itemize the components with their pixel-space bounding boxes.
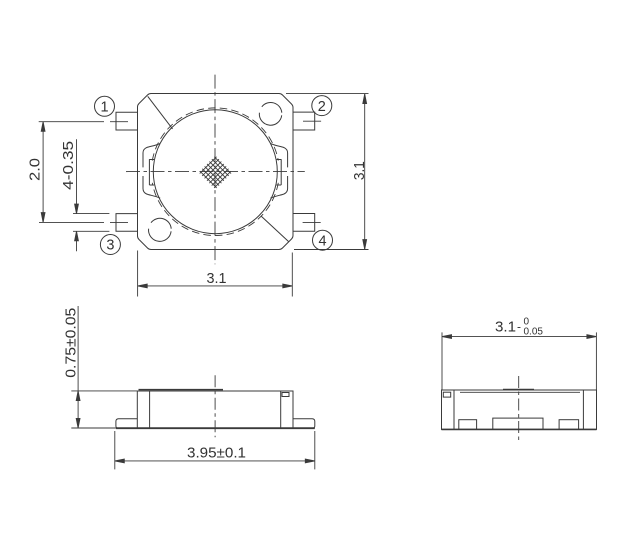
svg-text:2.0: 2.0	[27, 158, 44, 181]
svg-text:3.1: 3.1	[351, 161, 368, 180]
svg-text:3.1: 3.1	[495, 319, 516, 336]
svg-text:3: 3	[106, 238, 114, 254]
svg-text:0.05: 0.05	[524, 327, 544, 338]
svg-text:3.1: 3.1	[207, 270, 227, 287]
svg-text:0.75±0.05: 0.75±0.05	[64, 308, 80, 378]
svg-text:-: -	[517, 320, 521, 334]
svg-text:2: 2	[318, 99, 326, 115]
svg-text:4-0.35: 4-0.35	[60, 141, 77, 190]
svg-text:3.95±0.1: 3.95±0.1	[187, 444, 246, 461]
svg-text:1: 1	[100, 100, 108, 116]
svg-text:4: 4	[318, 233, 326, 249]
